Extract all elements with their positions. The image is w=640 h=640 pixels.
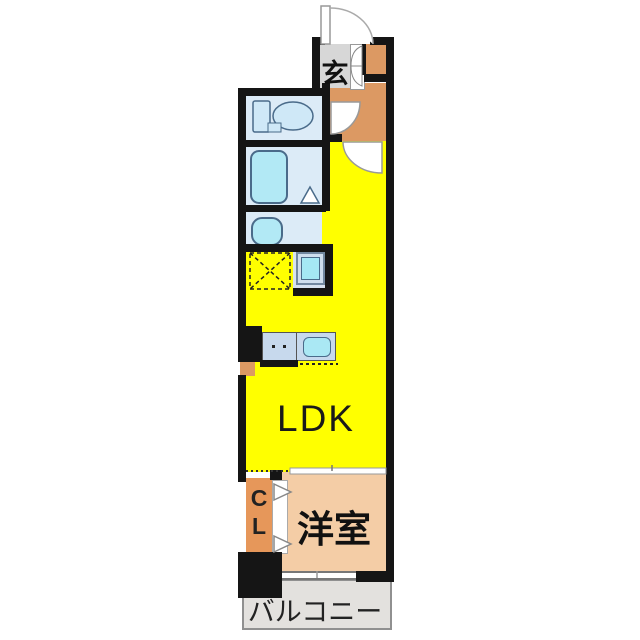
closet-label-l: L [246,513,272,540]
wall [240,205,326,212]
wall [240,140,330,147]
genkan-label: 玄 [318,52,352,91]
counter-base-wall [260,360,298,367]
wall [322,141,330,211]
wall [293,288,333,296]
wall [238,375,246,482]
toilet-room-floor [246,96,322,140]
entrance-upper-floor [365,44,386,75]
western-room-label: 洋室 [282,499,386,553]
wall [386,37,394,582]
floorplan-canvas: 玄 LDK C L 洋室 バルコニー [0,0,640,640]
kitchen-pillar [238,326,262,362]
balcony-label: バルコニー [242,590,388,629]
kitchen-sink-icon [303,337,331,357]
wall [322,134,342,142]
wall [362,44,366,75]
kitchen-counter [262,332,336,361]
wall [270,470,282,480]
burner-dot [283,345,286,348]
closet-label-c: C [246,485,272,512]
wall [238,244,330,252]
ldk-label: LDK [246,398,386,440]
bathtub-icon [250,150,288,204]
kitchen-side-block [240,362,255,376]
hall-floor [322,83,386,141]
wall [238,88,330,96]
window-band [282,571,356,580]
wall [356,571,386,582]
washbasin-icon [251,217,283,246]
wall [238,468,246,482]
entrance-door-icon [321,6,373,44]
washing-machine-icon [296,252,325,285]
burner-dot [272,345,275,348]
washing-machine-drum [301,257,320,280]
wall [364,74,394,82]
counter-divider [296,333,297,360]
